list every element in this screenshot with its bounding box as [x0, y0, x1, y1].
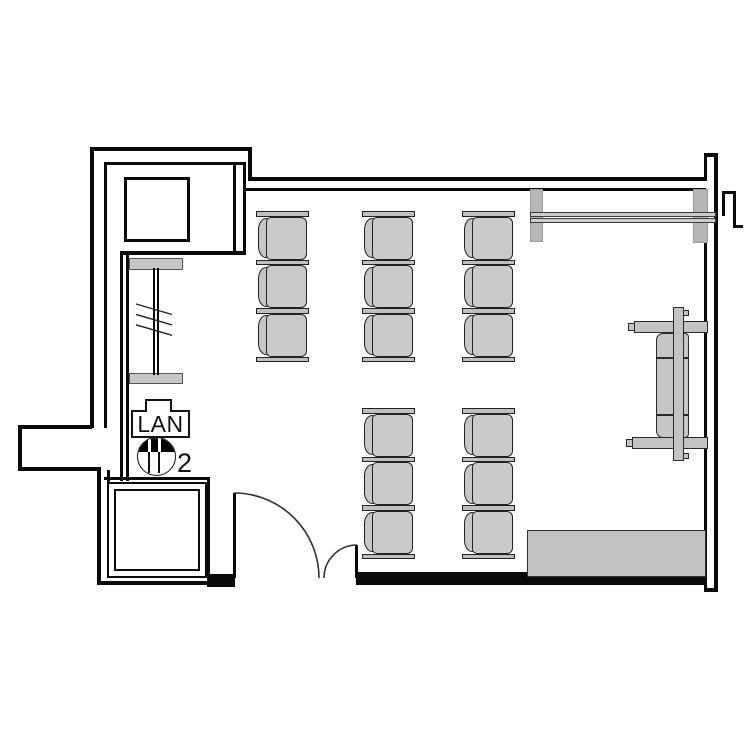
wall-segment — [104, 162, 246, 165]
lan-label-box: LAN — [131, 410, 190, 438]
chair-seat — [472, 314, 513, 357]
wall-segment — [243, 163, 246, 253]
desk-bar — [462, 357, 515, 363]
wall-segment — [733, 225, 743, 228]
chair-seat — [472, 265, 513, 308]
chair-seat — [266, 314, 307, 357]
wall-segment — [120, 251, 246, 255]
column-symbol-slit — [158, 438, 161, 452]
wall-segment — [233, 163, 236, 253]
wall-segment — [245, 188, 706, 191]
lan-label: LAN — [137, 411, 183, 438]
wall-segment — [104, 477, 208, 480]
chair — [364, 265, 413, 308]
chair-seat — [472, 511, 513, 554]
wall-segment — [704, 154, 707, 181]
counter-bench — [527, 530, 706, 577]
side-table-end-cap — [626, 439, 633, 447]
column-symbol-line — [148, 452, 150, 473]
lan-outlet-notch — [145, 399, 172, 412]
chair-seat — [266, 265, 307, 308]
wall-segment — [97, 467, 101, 585]
side-table-long-board — [673, 307, 684, 461]
chair-seat — [472, 217, 513, 260]
chair-seat — [372, 414, 413, 457]
wall-segment — [97, 581, 208, 585]
chair — [464, 217, 513, 260]
wall-filled-segment — [207, 574, 235, 587]
chair — [464, 511, 513, 554]
chair — [464, 265, 513, 308]
chair-seat — [372, 217, 413, 260]
wall-segment — [722, 191, 725, 216]
side-table-top-bar — [634, 321, 708, 333]
door-leaf-right — [355, 545, 358, 578]
door-swing-arc-left — [234, 493, 319, 578]
chair — [258, 265, 307, 308]
chair — [364, 511, 413, 554]
shaft-room-bottom-left-inner — [114, 489, 200, 571]
chair — [258, 217, 307, 260]
wall-segment — [90, 147, 94, 428]
chair — [258, 314, 307, 357]
chair-seat — [372, 314, 413, 357]
side-table-end-cap — [628, 323, 635, 331]
wall-segment — [733, 191, 736, 228]
chair-seat — [372, 511, 413, 554]
desk-bar — [256, 357, 309, 363]
door-leaf-left — [233, 493, 236, 578]
chair-seat — [472, 414, 513, 457]
desk-bar — [462, 554, 515, 560]
wall-segment — [248, 147, 252, 181]
shaft-room-top-left — [124, 177, 190, 242]
annotation-overlay — [0, 0, 750, 750]
column-symbol-fill — [138, 438, 175, 452]
side-table-nub — [683, 310, 689, 316]
side-table-bottom-bar — [632, 437, 708, 449]
wall-rail-top — [530, 212, 716, 217]
wall-segment — [91, 147, 251, 151]
chair-seat — [472, 462, 513, 505]
chair — [364, 217, 413, 260]
floor-plan: LAN 2 — [0, 0, 750, 750]
wall-segment — [18, 425, 92, 429]
wall-segment — [120, 251, 123, 481]
desk-bar — [362, 554, 415, 560]
window-pane-line — [157, 268, 159, 375]
wall-segment — [704, 588, 718, 592]
wall-segment — [126, 251, 129, 481]
wall-segment — [18, 425, 22, 471]
wall-segment — [207, 477, 210, 575]
wall-rail-bottom — [530, 218, 716, 223]
chair — [364, 414, 413, 457]
chair-seat — [372, 265, 413, 308]
wall-segment — [704, 153, 718, 157]
chair-seat — [266, 217, 307, 260]
chair — [364, 314, 413, 357]
wall-segment — [250, 177, 706, 181]
column-symbol — [137, 437, 176, 476]
chair — [464, 462, 513, 505]
chair — [464, 414, 513, 457]
chair — [364, 462, 413, 505]
column-symbol-slit — [148, 438, 151, 452]
side-table-nub — [683, 453, 689, 459]
chair — [464, 314, 513, 357]
wall-segment — [18, 467, 101, 471]
column-symbol-line — [158, 452, 160, 473]
wall-segment — [104, 162, 107, 428]
door-count-label: 2 — [177, 448, 192, 479]
door-swing-arc-right — [324, 545, 357, 578]
desk-bar — [362, 357, 415, 363]
chair-seat — [372, 462, 413, 505]
window-pane-line — [153, 268, 155, 375]
